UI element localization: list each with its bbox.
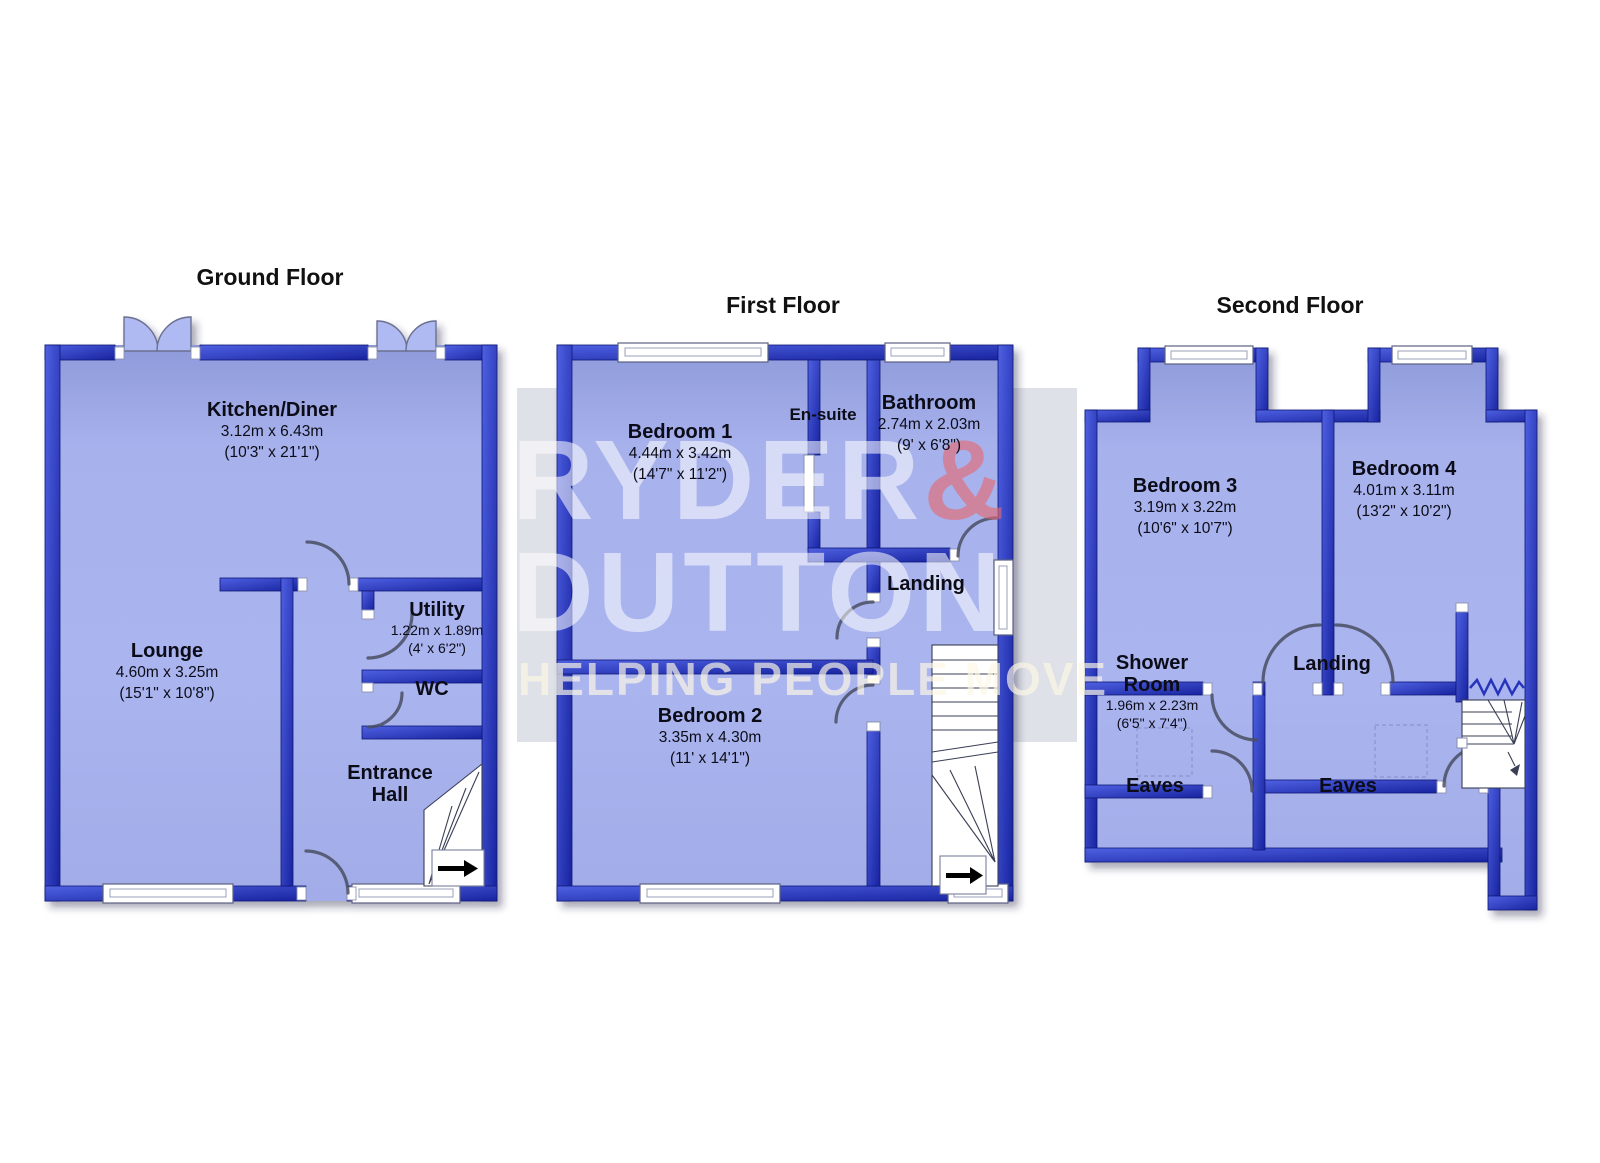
second-floor-slab [1085, 348, 1537, 910]
window [618, 343, 768, 362]
window [885, 343, 950, 362]
second-floor-stairs [1457, 700, 1525, 788]
window [1392, 346, 1472, 364]
room-label-landing-first: Landing [887, 573, 965, 595]
window [1165, 346, 1253, 364]
second-floor-title: Second Floor [1217, 292, 1364, 319]
room-label-wc: WC [415, 678, 448, 700]
first-floor-title: First Floor [726, 292, 840, 319]
second-floor-structure [1085, 348, 1537, 910]
room-label-landing-second: Landing [1293, 653, 1371, 675]
room-label-shower-room: Shower Room 1.96m x 2.23m (6'5" x 7'4") [1100, 652, 1204, 732]
room-label-eaves-right: Eaves [1319, 775, 1377, 797]
room-label-kitchen-diner: Kitchen/Diner 3.12m x 6.43m (10'3" x 21'… [207, 399, 337, 463]
room-label-bedroom-1: Bedroom 1 4.44m x 3.42m (14'7" x 11'2") [628, 421, 732, 485]
room-label-eaves-left: Eaves [1126, 775, 1184, 797]
room-label-utility: Utility 1.22m x 1.89m (4' x 6'2") [391, 599, 484, 657]
room-label-bedroom-4: Bedroom 4 4.01m x 3.11m (13'2" x 10'2") [1352, 458, 1456, 522]
room-label-entrance-hall: Entrance Hall [330, 762, 450, 806]
window [352, 884, 460, 903]
watermark-brand: RYDER& DUTTON [512, 424, 1009, 648]
watermark-tagline: HELPING PEOPLE MOVE [518, 652, 1108, 706]
room-label-lounge: Lounge 4.60m x 3.25m (15'1" x 10'8") [116, 640, 219, 704]
second-floor-plan [1085, 346, 1537, 910]
room-label-bedroom-2: Bedroom 2 3.35m x 4.30m (11' x 14'1") [658, 705, 762, 769]
window [103, 884, 233, 903]
ground-floor-title: Ground Floor [197, 264, 344, 291]
window [640, 884, 780, 903]
room-label-bathroom: Bathroom 2.74m x 2.03m (9' x 6'8") [878, 392, 981, 456]
second-floor-windows [1165, 346, 1472, 364]
room-label-bedroom-3: Bedroom 3 3.19m x 3.22m (10'6" x 10'7") [1133, 475, 1237, 539]
room-label-en-suite: En-suite [789, 404, 856, 426]
